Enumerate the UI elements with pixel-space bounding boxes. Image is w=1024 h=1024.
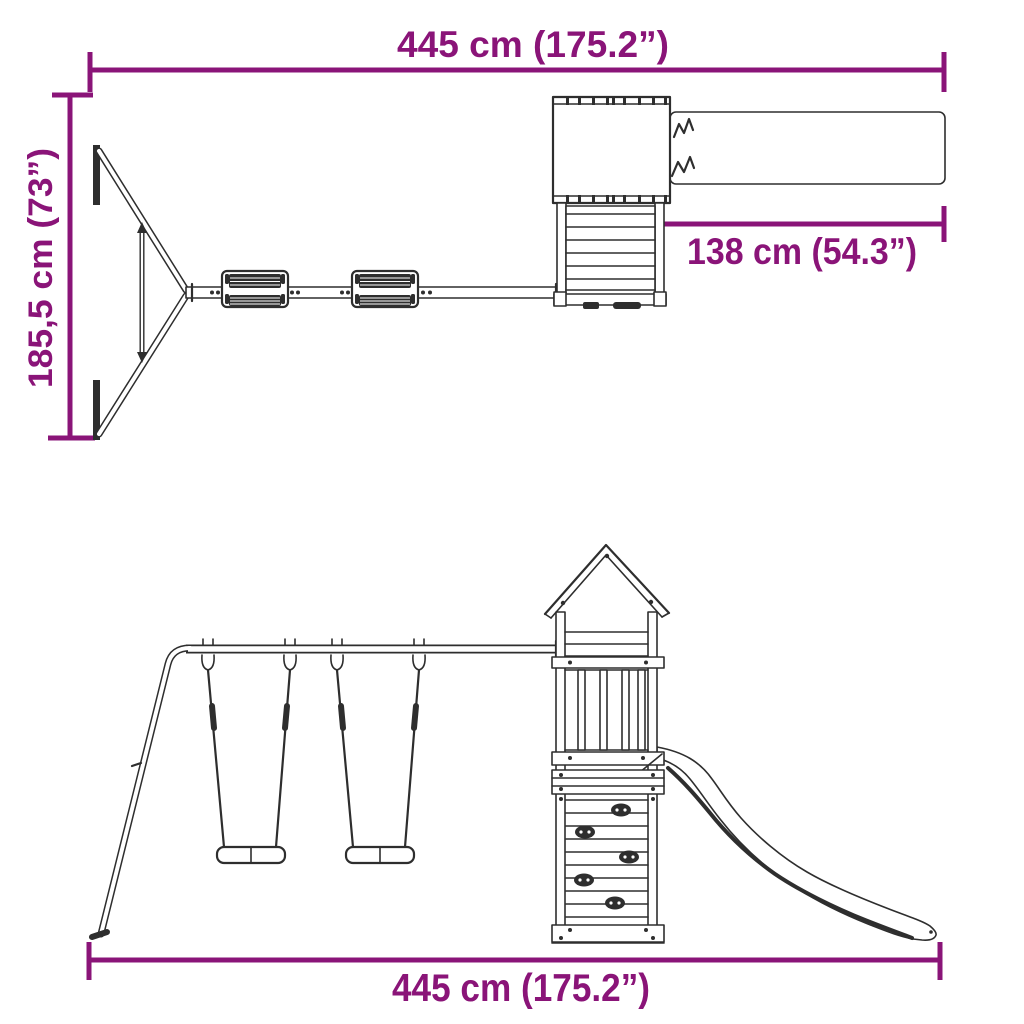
rope-adjuster <box>414 706 416 728</box>
rope-right <box>405 670 419 847</box>
playset-dimension-diagram: 445 cm (175.2”) 185,5 cm (73”) 138 cm (5… <box>0 0 1024 1024</box>
slide-body <box>657 747 936 940</box>
leg-foot-cap <box>92 932 107 937</box>
climbing-hold <box>574 874 594 887</box>
slide-top-view <box>670 112 945 184</box>
tower-roof-top-view <box>553 96 670 204</box>
tower-climbing-wall <box>566 800 648 917</box>
dimension-left-height: 185,5 cm (73”) <box>22 95 95 438</box>
rope-left <box>208 670 224 847</box>
window-slat <box>638 670 645 750</box>
dimension-label-left: 185,5 cm (73”) <box>22 148 60 388</box>
hanger-shackle <box>413 655 425 670</box>
diagram-canvas: 445 cm (175.2”) 185,5 cm (73”) 138 cm (5… <box>0 0 1024 1024</box>
rope-adjuster <box>212 706 214 728</box>
rope-left <box>337 670 353 847</box>
climbing-hold <box>575 826 595 839</box>
rope-adjuster <box>341 706 343 728</box>
dimension-label-slide: 138 cm (54.3”) <box>687 231 917 272</box>
base-rail <box>554 294 666 305</box>
climbing-hold <box>619 851 639 864</box>
tower-deck-band <box>552 752 664 801</box>
rope-adjuster <box>285 706 287 728</box>
hanger-shackle <box>284 655 296 670</box>
window-slat <box>600 670 607 750</box>
swing-aframe-top-view <box>93 145 186 440</box>
dimension-bottom-width: 445 cm (175.2”) <box>89 942 940 1010</box>
hanger-shackle <box>331 655 343 670</box>
base-foot-1 <box>583 302 599 309</box>
tower-roof <box>545 545 669 618</box>
rope-right <box>276 670 290 847</box>
swing-seat-top-view-2 <box>352 271 418 307</box>
window-slat <box>578 670 585 750</box>
swing-seat-top-view-1 <box>222 271 288 307</box>
swing-side-view-1 <box>202 655 296 863</box>
climbing-hold <box>611 804 631 817</box>
dimension-top-width: 445 cm (175.2”) <box>90 24 944 92</box>
hanger-shackle <box>202 655 214 670</box>
climbing-hold <box>605 897 625 910</box>
swing-frame-side-view <box>92 639 557 937</box>
side-view-drawing <box>92 545 936 943</box>
climbing-wall-top-view <box>554 203 666 309</box>
window-slat <box>622 670 629 750</box>
swing-side-view-2 <box>331 655 425 863</box>
beam-clamps <box>203 639 424 645</box>
dimension-label-top: 445 cm (175.2”) <box>397 24 669 65</box>
tower-side-view <box>545 545 669 943</box>
base-foot-2 <box>613 302 641 309</box>
dimension-slide-depth: 138 cm (54.3”) <box>661 206 944 272</box>
tower-base <box>552 925 664 943</box>
slide-side-view <box>657 747 936 940</box>
dimension-label-bottom: 445 cm (175.2”) <box>392 967 650 1010</box>
